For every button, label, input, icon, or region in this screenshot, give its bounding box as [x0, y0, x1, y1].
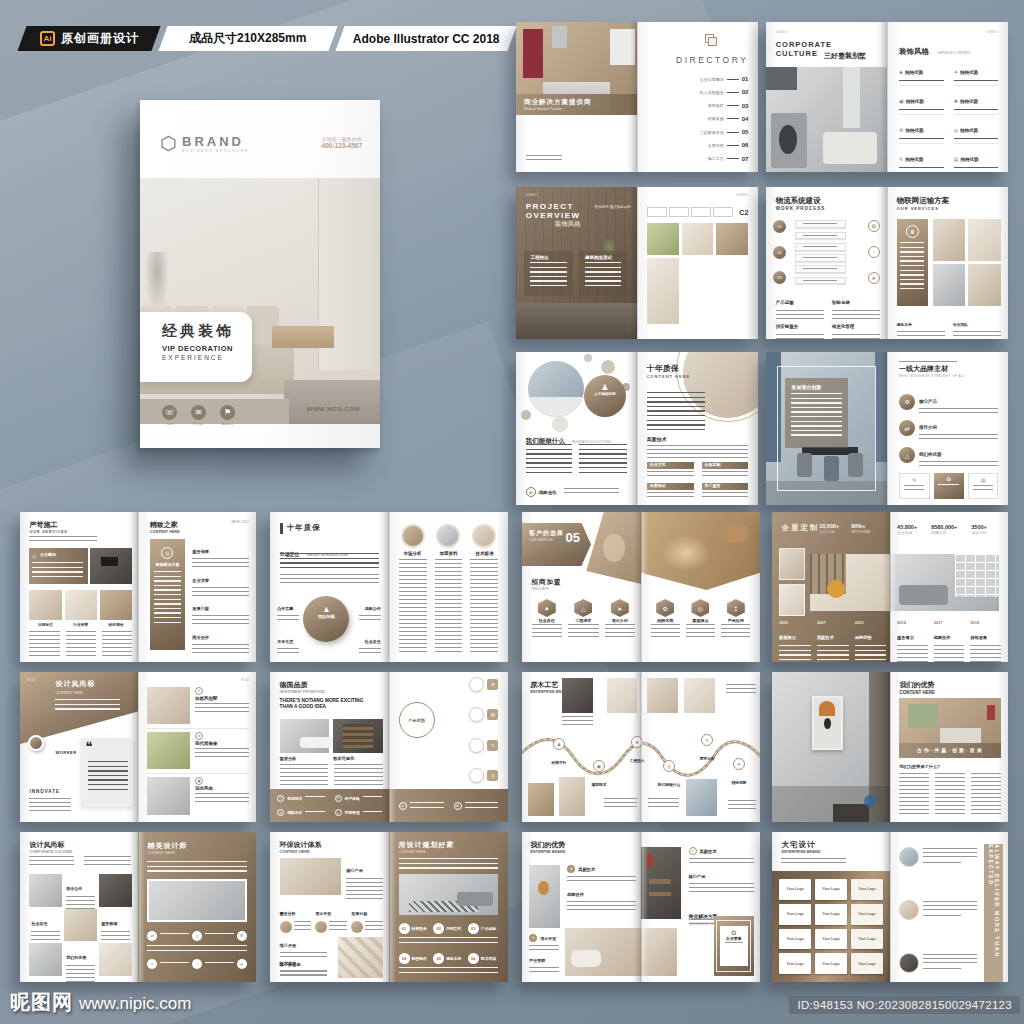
share-icon: ⇄	[399, 802, 407, 810]
text-bars	[923, 915, 961, 919]
spread-s1: 商业解决方案提供商 Medical Solution Provider DIRE…	[516, 22, 758, 172]
hex-label: 项目介绍	[605, 618, 636, 623]
triangle-icon: △	[899, 447, 915, 463]
gear-icon: ⚙	[277, 809, 284, 816]
heading-en: ENTERPSE BRAND	[530, 850, 570, 854]
text-cell: 社会责任	[29, 909, 62, 942]
heading-en: INVESTMENT PROMOTION	[280, 690, 325, 694]
heading-en: CONTENT HERE	[55, 691, 83, 695]
year-columns: 2005案例展示 2007高新技术 2012品牌优势	[779, 620, 886, 655]
spread-b9: 设计风尚标 CORPORATE CULTURE 商业合作 社会责任 服务领域 我…	[20, 832, 256, 982]
logo-box: Your Logo	[779, 929, 811, 950]
spec-header: C2	[647, 205, 749, 219]
heading-cn: 我们能做什么	[526, 437, 565, 444]
panel-title: 建筑构造形式	[585, 255, 621, 260]
caption-row: 品牌定位 行业荣誉 经济增长	[29, 622, 132, 627]
living-photo	[399, 874, 499, 915]
text-bars	[32, 562, 83, 578]
caption: 行业荣誉	[65, 622, 97, 627]
photo-circle	[899, 847, 919, 867]
label: 产业智联	[529, 958, 545, 963]
person-icon: ♟	[303, 606, 349, 614]
spec-cell	[669, 207, 689, 217]
text-bars	[899, 167, 944, 173]
b3-left-page: 客户的选择 OUR SERVICE 05 招商加盟 INNOVATE ▲社会责任…	[522, 512, 641, 662]
directory-list: 企业品牌概况01 私人定制服务02 装饰风格03 经典案例04 三好家装体系05…	[656, 76, 748, 162]
b8-left-page	[772, 672, 890, 822]
spread-s6: 发展潜台创新 一线大品牌主材 BEST BUSINESS STRATEGY OF…	[766, 352, 1008, 505]
text-bars	[725, 942, 743, 946]
heading-cn: 装饰风格	[899, 47, 929, 56]
text-bars	[689, 858, 754, 866]
flow-box	[795, 265, 846, 273]
bars-columns	[899, 773, 1000, 817]
heading-en: SERVICE CONTENT	[938, 51, 971, 55]
caption: 经济增长	[100, 622, 132, 627]
spec-cell	[647, 207, 667, 217]
flow-box	[795, 254, 846, 262]
trio-row: 需求分析 项目开发 发展目标	[280, 901, 384, 930]
node-circle: ✎	[147, 959, 157, 969]
ribbon-size: 成品尺寸210X285mm	[158, 26, 337, 51]
b12-left-page: 大宅设计 ENTERPRISE BRAND Your Logo Your Log…	[772, 832, 890, 982]
angled-header: N°11 设计风尚标 CONTENT HERE	[20, 672, 138, 744]
year-item: 2012品牌优势	[855, 620, 887, 655]
text-bars	[29, 631, 59, 657]
logo-wall-grid: Your Logo Your Logo Your Logo Your Logo …	[779, 879, 883, 974]
band-item: ✎先进技术	[277, 792, 324, 805]
timeline-node: ▣模型技术	[584, 760, 614, 790]
stats-row: 45,800+企业价值 8580,000+品牌文化 3500+项目介绍	[897, 524, 1001, 535]
style-label: 自然风别墅	[195, 696, 249, 701]
branch-node: ▤	[469, 707, 498, 722]
b1-right-page: 精致之家 CONTENT HERE PAGE 01/02 ◎ 整体解决方案 服务…	[138, 512, 256, 662]
photo-thumb	[933, 219, 965, 261]
glossy-photo-bg: Your Logo Your Logo Your Logo Your Logo …	[772, 871, 890, 982]
ribbon-software: Adobe Illustrator CC 2018	[335, 26, 516, 51]
text-bars	[192, 587, 249, 596]
feature-rows: ⚙ 核心产品 ⇄ 项目介绍 △ 我们的优势	[899, 389, 998, 469]
spread-s3: LOGO / PROJECT OVERVIEW 装饰风格 经典细节 重点项目名称…	[516, 187, 758, 339]
node-label: 独特优势	[731, 781, 746, 785]
text-bars	[702, 471, 749, 479]
text-bars	[971, 773, 1001, 817]
floor	[516, 303, 637, 339]
lounge-photo-left	[565, 928, 641, 976]
hex-item: ➤项目介绍	[605, 599, 636, 656]
brown-banner: △ 企业概况	[29, 548, 88, 584]
node-label: 需求分析	[699, 757, 714, 761]
text-bars	[84, 856, 131, 865]
caption: 需求分析	[280, 756, 330, 761]
section-grid: 产品运输 智能仓储 供应链服务 信息化管理	[776, 290, 880, 333]
ai-logo-icon: Ai	[40, 31, 55, 46]
year-item: 2017战略合作	[934, 620, 965, 655]
sections: 服务保障 企业荣誉 发展目标 商业合作	[192, 539, 249, 653]
stat: 8580,000+品牌文化	[931, 524, 957, 535]
stairs-photo	[338, 937, 383, 978]
item-label: 企业品牌概况	[700, 77, 724, 82]
item-rule	[727, 145, 739, 146]
band-title-cn: 商业解决方案提供商	[524, 98, 637, 107]
tag-grid: 企业文化 全屋定制 品质保证 售后服务	[647, 462, 749, 499]
text-bars	[779, 645, 811, 662]
item-rule	[727, 158, 739, 159]
quote-icon: ❝	[86, 739, 93, 754]
cover-logo: BRAND BUSINESS BROCHURE	[160, 134, 249, 153]
text-bars	[923, 901, 977, 913]
process-flow: 01 02 03 ✪ ◔ ➤	[773, 220, 880, 284]
logo-box: Your Logo	[779, 953, 811, 974]
heading-en: CONTENT HERE	[647, 374, 691, 379]
arrow-icon: ➤	[611, 599, 629, 617]
cover-title-cn: 经典装饰	[162, 322, 252, 341]
kitchen-photo	[147, 879, 246, 923]
vertical-slogan-band: ALWAY DELIVER MORE THAN EXPECTED	[984, 844, 1003, 982]
text-bars	[277, 615, 299, 620]
up-icon: ↥	[727, 599, 745, 617]
ribbon-software-text: Adobe Illustrator CC 2018	[353, 32, 500, 46]
stat: 3500+项目介绍	[971, 524, 986, 535]
website-sub2: BUSINESS BROCHURE	[307, 419, 361, 424]
gear-icon: ⚙	[899, 394, 915, 410]
column-label: 技术标准	[475, 551, 493, 556]
deco-dot	[601, 360, 615, 374]
heading: 一线大品牌主材 BEST BUSINESS STRATEGY OF ALL	[899, 361, 972, 378]
s2-left-page: LOGO / CORPORATE CULTURE 三好整装别墅	[766, 22, 887, 172]
numbered-item: 02内部文化	[433, 921, 464, 936]
text-bars	[365, 921, 383, 933]
heading: 德国品质 INVESTMENT PROMOTION	[280, 680, 325, 694]
label-icon: ⚙	[567, 865, 575, 873]
b11-left-page: 我们的优势 ENTERPSE BRAND ⚙高新技术 战略合作 ✎项目开发 产业…	[522, 832, 641, 982]
text-bars	[568, 624, 599, 638]
photo-grid	[647, 223, 749, 329]
photo-cell	[99, 943, 132, 976]
spread-b8: 我们的优势 CONTENT HERE 合作·共赢·创新·发展 我们为您带来了什么…	[772, 672, 1008, 822]
step-circle: 03	[773, 271, 786, 284]
timeline-node: ⚙工程造价	[622, 736, 652, 766]
heading-cn: 物联网运输方案	[897, 196, 950, 206]
person-icon: ♟	[584, 383, 626, 392]
feature-row: ⚙ 核心产品	[899, 389, 998, 415]
feature-icon: ◈	[899, 69, 903, 75]
banner-cn: 客户的选择	[529, 529, 591, 538]
photo-thumb	[682, 223, 714, 255]
heading: 物联网运输方案 OUR SERVICES	[897, 196, 950, 211]
style-row: ✦自然风别墅	[147, 687, 248, 724]
ribbon-title-text: 原创画册设计	[61, 30, 139, 47]
text-bars	[567, 876, 636, 884]
text-cell: 服务领域	[99, 909, 132, 942]
heading-en: CONTENT HERE	[399, 850, 455, 854]
innovate-label: INNOVATE	[29, 789, 60, 794]
s5-left-page: ♟ 人才建设机制 我们能做什么 BUSINESS SOLUTIONS ⇄ 战略合…	[516, 352, 637, 505]
text-bars	[900, 242, 924, 290]
trophy-icon: ♛	[906, 225, 919, 238]
doc-icon: ▤	[969, 477, 997, 483]
pen-icon: ✎	[277, 795, 284, 802]
item-label: 施工工艺	[708, 156, 724, 161]
text-bars	[781, 858, 846, 864]
values-section: 核心价值观	[280, 952, 328, 979]
b6-right-page: 产品优势 ⚙ ▤ ✎ ◎ ⇄ ✪	[389, 672, 508, 822]
tag: 售后服务	[702, 483, 749, 500]
node-label: 模型技术	[591, 783, 606, 787]
text-bars	[529, 967, 559, 973]
heading-cn: 大宅设计	[781, 840, 820, 850]
heading-en: CONTENT HERE	[280, 850, 322, 854]
lounge-photo-right	[641, 928, 677, 976]
mail-label: E-mail	[191, 422, 206, 426]
text-bars	[195, 748, 249, 757]
triangle-icon: △	[574, 599, 592, 617]
hex-label: 社会责任	[532, 618, 563, 623]
text-bars	[192, 558, 249, 567]
issue-number: N°11	[27, 678, 35, 682]
award-icon: ✪	[454, 802, 462, 810]
cover-title-en1: VIP DECORATION	[162, 344, 252, 353]
range-hood	[552, 26, 567, 48]
photo-thumb	[968, 219, 1000, 261]
feature-item: ⚙独特优势	[899, 114, 944, 138]
item-label: 三好家装体系	[700, 130, 724, 135]
hex-label: 独特优势	[651, 618, 680, 623]
hex-item: ↥产品应用	[721, 599, 750, 656]
b4-left-page: 全屋定制 10,500+合作共赢 90%+我们的优势 2005案例展示 2007…	[772, 512, 890, 662]
red-cabinet	[523, 29, 542, 77]
photo-circle	[899, 953, 919, 973]
b6-left-page: 德国品质 INVESTMENT PROMOTION THERE'S NOTHIN…	[270, 672, 389, 822]
year-item: 2005案例展示	[779, 620, 811, 655]
branch-node: ⚙	[469, 677, 498, 692]
feature-icon: ◎	[954, 127, 958, 133]
s2-right-page: LOGO / 装饰风格 SERVICE CONTENT ◈独特优势 ✦独特优势 …	[887, 22, 1008, 172]
spread-b5: N°11 设计风尚标 CONTENT HERE WORKER STUDY CAS…	[20, 672, 256, 822]
text-bars	[791, 393, 842, 437]
feature-item: ◈独特优势	[899, 60, 944, 80]
b3-right-page: ⚙独特优势 ◎案例展示 ↥产品应用	[641, 512, 760, 662]
heading-cn: 十年质保	[647, 363, 691, 374]
hex-label: 案例展示	[686, 618, 715, 623]
section: 专业团队	[953, 312, 1001, 331]
spread-b12: 大宅设计 ENTERPRISE BRAND Your Logo Your Log…	[772, 832, 1008, 982]
text-bars	[192, 615, 249, 624]
band-item: ↥可视管理	[335, 807, 382, 820]
hallway-photo	[772, 672, 890, 822]
feature-icon: ▣	[899, 98, 904, 104]
photo-cell	[64, 909, 97, 942]
caption: 品牌定位	[29, 622, 61, 627]
cooperation-label: 战略合作	[539, 490, 557, 495]
label-icon: ✦	[689, 847, 697, 855]
text-bars	[529, 945, 559, 951]
logo-box: Your Logo	[815, 904, 847, 925]
page-indicator: PAGE 01/02	[231, 520, 248, 524]
b2-right-page: 市场分析 加盟资料 技术标准	[389, 512, 508, 662]
style-label: 现代简装修	[195, 741, 249, 746]
feature-rows	[899, 847, 977, 973]
site-watermark: 昵图网 www.nipic.com	[10, 989, 191, 1016]
heading: 我们的优势 ENTERPSE BRAND	[530, 840, 570, 854]
photo-cell	[99, 874, 132, 907]
tab-label: WORKER	[55, 750, 76, 755]
craft-photo-wide	[641, 512, 760, 590]
text-bars	[776, 334, 824, 339]
text-bars	[954, 167, 999, 173]
item-num: 02	[742, 89, 749, 95]
feature-row: △ 我们的优势	[899, 442, 998, 468]
node-circle: ✦	[237, 959, 247, 969]
node-icon-box: ⚙	[487, 679, 498, 690]
overlay-title: 发展潜台创新	[791, 384, 842, 390]
flow-box	[795, 232, 846, 240]
feature-icon: ⚙	[899, 127, 903, 133]
result-icons: ✪ ◔ ➤	[865, 220, 880, 284]
photo-thumb	[100, 590, 132, 620]
photo-circle	[899, 900, 919, 920]
logo-box: Your Logo	[815, 879, 847, 900]
phone-label: Phone	[162, 422, 177, 426]
photo-thumb	[65, 590, 97, 620]
slogan-text: 合作·共赢·创新·发展	[917, 747, 984, 753]
ribbon-title: Ai 原创画册设计	[17, 26, 160, 51]
washer	[771, 113, 807, 168]
text-bars	[329, 921, 347, 933]
heading-en: ENTERPRISE BRAND	[781, 850, 820, 854]
up-icon: ↥	[335, 809, 342, 816]
corner-item: 战略合作	[359, 596, 381, 620]
text-bars	[280, 764, 329, 785]
curtain	[875, 352, 887, 462]
node-circle: ⇄	[147, 931, 157, 941]
text-bars	[702, 492, 749, 500]
triangle-icon: △	[32, 552, 36, 558]
text-bars	[923, 954, 977, 966]
node-circle: ⚙	[237, 931, 247, 941]
panel-label: 整体解决方案	[150, 562, 185, 567]
flow-box	[795, 277, 846, 285]
timeline-row: ⇄ △ ⚙	[147, 930, 246, 942]
flow-box	[795, 243, 846, 251]
text-bars	[935, 773, 965, 817]
year-item: 2014服务展示	[897, 620, 928, 655]
corner-item: 开放生态	[277, 629, 299, 653]
flow-box	[795, 220, 846, 228]
text-bars	[647, 445, 749, 457]
b5-left-page: N°11 设计风尚标 CONTENT HERE WORKER STUDY CAS…	[20, 672, 138, 822]
row-label: 项目介绍	[919, 425, 937, 430]
cover-contact-icons: ☏Phone ✉E-mail ⚑Address	[162, 405, 235, 426]
timeline-row: ✎ ◔ ✦	[147, 958, 246, 970]
b5-right-page: N°12 ✦自然风别墅 ⚙现代简装修 ▣混搭风格	[138, 672, 256, 822]
badge-label: 人才建设机制	[584, 392, 626, 396]
text-bars	[899, 773, 929, 817]
spread-b4: 全屋定制 10,500+合作共赢 90%+我们的优势 2005案例展示 2007…	[772, 512, 1008, 662]
deco-dot	[584, 354, 592, 362]
flow-boxes	[795, 220, 846, 284]
text-bars	[102, 631, 132, 657]
site-name: 昵图网	[10, 989, 73, 1016]
stock-preview-canvas: { "top_bar": {"ai_badge":"Ai","label1":"…	[0, 0, 1024, 1024]
text-bars	[897, 645, 928, 662]
trio-item: 项目开发	[315, 901, 347, 933]
logo-text: LOGO /	[526, 193, 538, 197]
honor-label: 企业荣誉	[720, 936, 748, 941]
text-bars	[855, 645, 887, 662]
text-bars	[651, 624, 680, 638]
text-bars	[647, 492, 694, 500]
gear-icon: ⚙	[656, 599, 674, 617]
text-bars	[88, 761, 129, 793]
spread-s5: ♟ 人才建设机制 我们能做什么 BUSINESS SOLUTIONS ⇄ 战略合…	[516, 352, 758, 505]
text-bars	[564, 488, 619, 496]
b9-right-page: 精英设计师 CONTENT HERE ⇄ △ ⚙ ✎ ◔ ✦	[138, 832, 256, 982]
heading-cn: 招商加盟	[532, 578, 562, 587]
text-bars	[923, 848, 977, 860]
quote-panel: ❝	[81, 738, 133, 807]
banner-row: △ 企业概况	[29, 548, 132, 584]
s3-right-page: LOGO / C2	[637, 187, 758, 339]
share-icon: ⇄	[335, 795, 342, 802]
heading-en: INNOVATE	[532, 587, 562, 591]
tag: 全屋定制	[702, 462, 749, 479]
node-label: 工程造价	[629, 759, 644, 763]
text-bars	[919, 408, 998, 415]
text-bars	[280, 574, 380, 586]
directory-item: 三好家装体系05	[656, 129, 748, 135]
band-title-en: Medical Solution Provider	[524, 107, 637, 111]
side-section: 核心产品	[346, 858, 383, 900]
s4-left-page: 物流系统建设 WORK PROCESS 01 02 03 ✪ ◔ ➤	[766, 187, 887, 339]
arrow-icon: ➤	[868, 272, 880, 284]
info-box: ▤	[968, 473, 998, 499]
hex-label: 产品应用	[721, 618, 750, 623]
feature-icon: ✦	[954, 69, 958, 75]
text-bars	[567, 901, 636, 913]
sofa	[823, 132, 877, 164]
photo-thumb	[933, 264, 965, 306]
section: 服务保障	[192, 539, 249, 567]
node-circle: ◔	[192, 959, 202, 969]
chart-icon: ▲	[538, 599, 556, 617]
text-bars	[399, 937, 499, 946]
center-circle: 产品优势	[399, 702, 435, 738]
b4-right-page: 45,800+企业价值 8580,000+品牌文化 3500+项目介绍 2014…	[890, 512, 1008, 662]
title-band: 商业解决方案提供商 Medical Solution Provider	[516, 94, 637, 115]
caption-row: 需求分析 数据可视化	[280, 756, 384, 761]
section: 信息化管理	[832, 314, 880, 334]
band-item: ⇄	[399, 793, 444, 818]
trio-item: 需求分析	[280, 901, 312, 933]
numbered-item: 03产品运输	[468, 921, 499, 936]
office-photo-circle	[528, 361, 584, 417]
honor-box: ✪ 企业荣誉	[714, 916, 754, 976]
item-rule	[727, 105, 739, 106]
trophy-panel: ♛	[897, 219, 928, 306]
banner-en: OUR SERVICE	[529, 538, 591, 542]
title-cn: 三好整装别墅	[824, 51, 866, 61]
logo-box: Your Logo	[815, 953, 847, 974]
heading: 招商加盟 INNOVATE	[532, 578, 562, 591]
title-en: CORPORATE CULTURE	[776, 40, 827, 58]
logo-box: Your Logo	[851, 929, 883, 950]
text-bars	[526, 444, 572, 475]
accent	[987, 705, 995, 721]
award-icon: ✪	[934, 476, 964, 482]
text-cell: 商业合作	[64, 874, 97, 907]
heading-en: OUR SERVICES	[29, 530, 67, 534]
